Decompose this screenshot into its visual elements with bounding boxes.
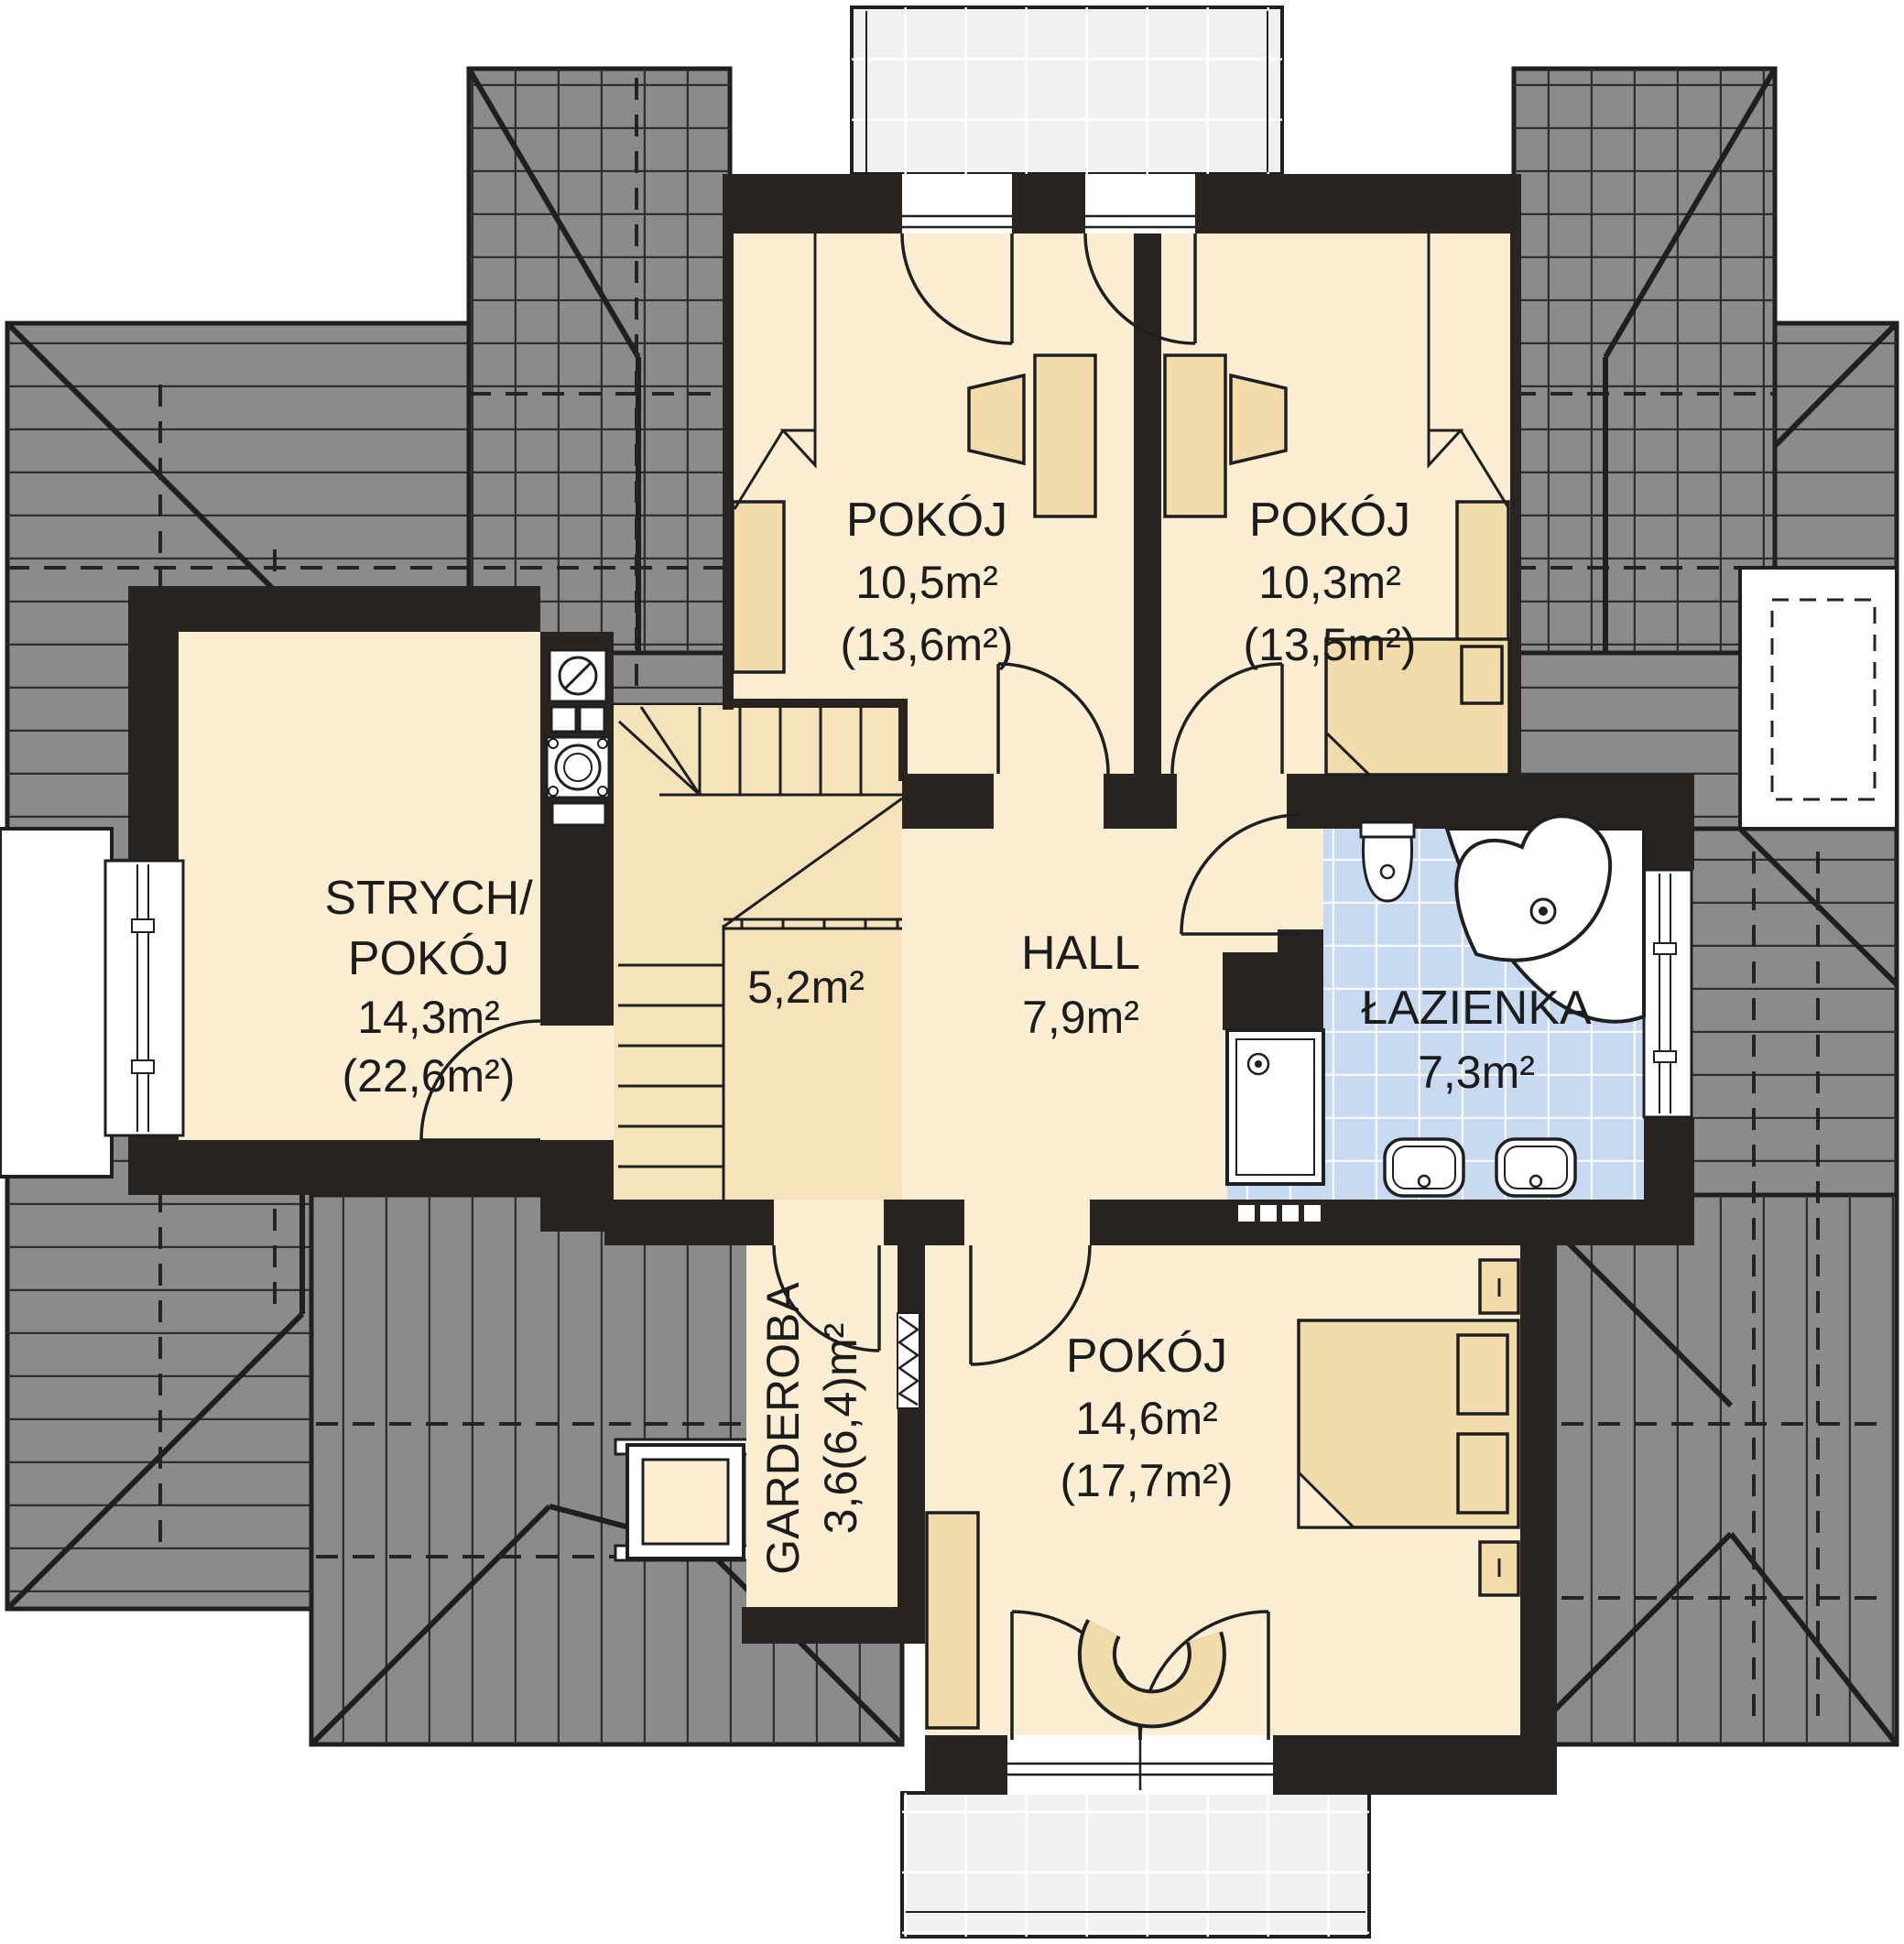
- floor-plan-svg: POKÓJ 10,5m² (13,6m²) POKÓJ 10,3m² (13,5…: [0, 0, 1904, 1944]
- wall-room3-east: [1520, 1200, 1557, 1740]
- room3-pillow1: [1458, 1335, 1507, 1414]
- stairs-area: 5,2m²: [747, 961, 865, 1013]
- room2-desk: [1165, 355, 1225, 516]
- room3-shelf: [927, 1513, 978, 1728]
- wardrobe-door-opening: [774, 1200, 884, 1245]
- floor-plan: POKÓJ 10,5m² (13,6m²) POKÓJ 10,3m² (13,5…: [0, 0, 1904, 1944]
- wall-bathroom-east-bottom: [1644, 1117, 1694, 1204]
- room2-area-total: (13,5m²): [1244, 619, 1417, 670]
- wall-bathroom-west: [1278, 929, 1323, 1030]
- attic-door-opening: [540, 1026, 614, 1140]
- right-dormer-face: [1740, 568, 1897, 829]
- room2-area: 10,3m²: [1258, 557, 1401, 608]
- room3-area-total: (17,7m²): [1061, 1455, 1234, 1506]
- hall-area: 7,9m²: [1022, 992, 1139, 1043]
- room3-area: 14,6m²: [1075, 1393, 1218, 1444]
- room1-area: 10,5m²: [855, 557, 998, 608]
- terrace-door2-opening: [1085, 174, 1195, 233]
- room2-pillow: [1462, 646, 1502, 703]
- roof-bottom-right: [1520, 1195, 1897, 1744]
- wall-bathroom-north: [1323, 774, 1694, 829]
- room2-label: POKÓJ: [1249, 494, 1410, 547]
- bathroom-label: ŁAZIENKA: [1361, 982, 1592, 1035]
- bathroom-window: [1644, 870, 1692, 1117]
- wall-attic-south: [128, 1140, 540, 1195]
- attic-label-line1: STRYCH/: [324, 872, 533, 925]
- bathroom-doorway-floor: [1278, 829, 1323, 934]
- attic-area: 14,3m²: [357, 992, 500, 1043]
- hall-floor: [902, 774, 1278, 1200]
- attic-label-line2: POKÓJ: [348, 932, 509, 985]
- attic-window: [105, 861, 183, 1135]
- left-dormer-face: [0, 829, 112, 1177]
- wall-room-divider: [1134, 174, 1161, 829]
- terrace-bottom: [902, 1793, 1369, 1937]
- room1-label: POKÓJ: [846, 494, 1007, 547]
- room1-desk: [1035, 355, 1095, 516]
- room3-door-opening: [964, 1200, 1090, 1245]
- wall-stairs-south: [604, 1200, 742, 1245]
- hall-label: HALL: [1021, 927, 1140, 980]
- room1-chair: [969, 375, 1024, 463]
- roof-top-left-block: [469, 69, 730, 653]
- room1-wardrobe: [733, 502, 784, 672]
- terrace-door1-opening: [902, 174, 1012, 233]
- terrace-top: [852, 7, 1282, 174]
- wall-room2-east: [1510, 174, 1521, 774]
- wall-wardrobe-south: [742, 1607, 925, 1644]
- roof-top-right-block: [1514, 69, 1775, 653]
- wall-room1-stairs: [728, 699, 907, 708]
- chimney-stack: [547, 650, 609, 825]
- sink-right-icon: [1496, 1139, 1575, 1196]
- skylight-window: [615, 1439, 755, 1560]
- shower-tray-icon: [1227, 1030, 1323, 1184]
- wall-attic-north: [128, 586, 540, 632]
- room3-label: POKÓJ: [1066, 1330, 1227, 1383]
- room1-door-opening: [994, 774, 1104, 829]
- attic-area-total: (22,6m²): [343, 1050, 516, 1102]
- room1-area-total: (13,6m²): [841, 619, 1014, 670]
- wall-wardrobe-room3-divider: [898, 1245, 925, 1612]
- sink-left-icon: [1385, 1139, 1463, 1196]
- wall-stairs-room1-side: [898, 699, 908, 781]
- wall-attic-west-upper: [128, 632, 179, 861]
- knee-wall-hatch: [898, 1313, 919, 1408]
- wardrobe-label: GARDEROBA: [757, 1282, 809, 1575]
- wardrobe-area: 3,6(6,4)m²: [815, 1323, 866, 1535]
- bathroom-area: 7,3m²: [1418, 1047, 1535, 1098]
- wall-bathroom-stub: [1223, 952, 1278, 1030]
- room3-pillow2: [1458, 1434, 1507, 1513]
- room2-chair: [1231, 375, 1286, 463]
- wall-bathroom-east-top: [1644, 829, 1694, 870]
